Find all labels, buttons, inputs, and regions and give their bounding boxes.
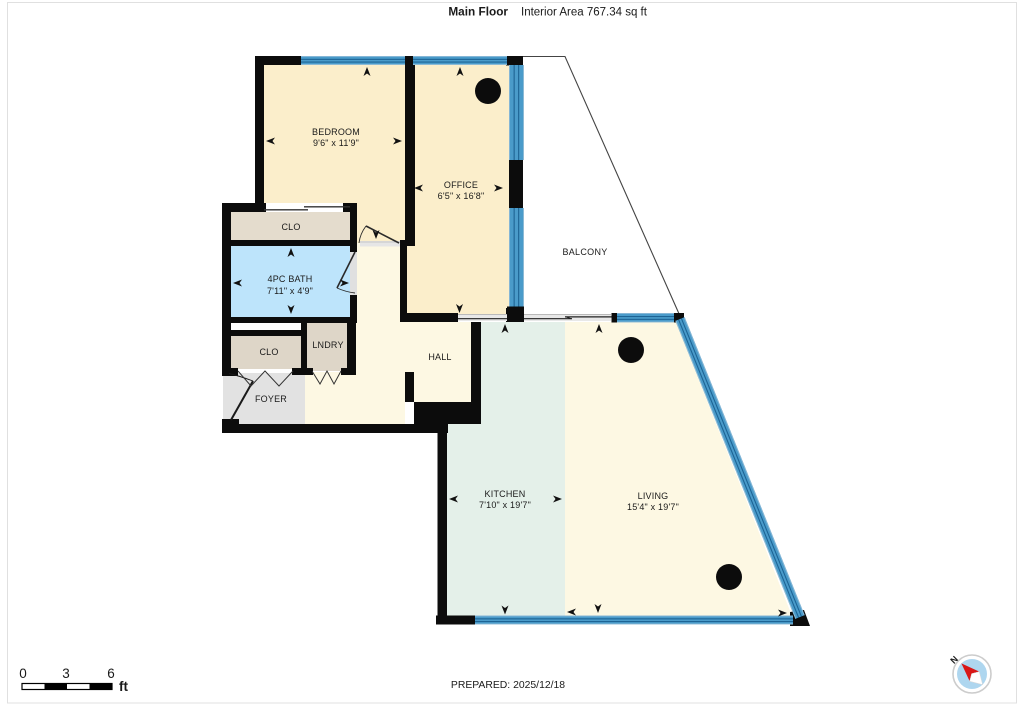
svg-text:0: 0	[19, 666, 27, 681]
svg-text:6'5" x 16'8": 6'5" x 16'8"	[438, 191, 485, 201]
svg-text:OFFICE: OFFICE	[444, 180, 478, 190]
svg-text:LIVING: LIVING	[638, 491, 669, 501]
svg-text:9'6" x 11'9": 9'6" x 11'9"	[313, 138, 359, 148]
svg-text:BEDROOM: BEDROOM	[312, 127, 360, 137]
svg-text:FOYER: FOYER	[255, 394, 287, 404]
svg-text:CLO: CLO	[281, 222, 300, 232]
svg-text:LNDRY: LNDRY	[312, 340, 343, 350]
svg-text:Main Floor: Main Floor	[448, 5, 508, 19]
svg-text:ft: ft	[119, 679, 128, 694]
svg-text:7'11" x 4'9": 7'11" x 4'9"	[267, 286, 313, 296]
svg-text:BALCONY: BALCONY	[562, 247, 607, 257]
svg-text:15'4" x 19'7": 15'4" x 19'7"	[627, 502, 679, 512]
svg-text:4PC BATH: 4PC BATH	[268, 274, 313, 284]
svg-text:6: 6	[107, 666, 115, 681]
svg-text:Interior Area 767.34 sq ft: Interior Area 767.34 sq ft	[521, 7, 648, 19]
svg-text:HALL: HALL	[428, 352, 451, 362]
svg-text:KITCHEN: KITCHEN	[485, 489, 526, 499]
svg-text:PREPARED: 2025/12/18: PREPARED: 2025/12/18	[451, 680, 565, 691]
svg-text:7'10" x 19'7": 7'10" x 19'7"	[479, 500, 531, 510]
svg-text:CLO: CLO	[259, 347, 278, 357]
svg-text:3: 3	[62, 666, 70, 681]
